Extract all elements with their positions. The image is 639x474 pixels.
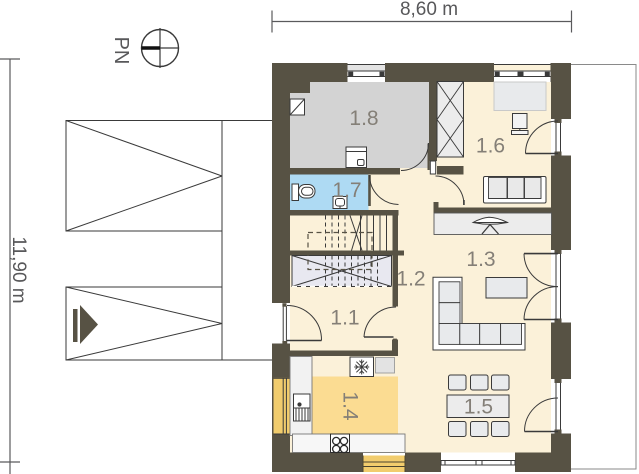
svg-text:1.4: 1.4 (338, 391, 361, 421)
svg-text:1.2: 1.2 (396, 268, 425, 291)
svg-text:1.7: 1.7 (332, 179, 361, 202)
svg-text:8,60 m: 8,60 m (400, 0, 458, 20)
svg-text:PN: PN (110, 37, 132, 65)
svg-text:1.5: 1.5 (464, 396, 493, 419)
svg-text:11,90 m: 11,90 m (8, 236, 29, 303)
svg-text:1.1: 1.1 (330, 307, 359, 330)
svg-text:1.3: 1.3 (466, 248, 495, 271)
svg-text:1.8: 1.8 (349, 107, 378, 130)
svg-text:1.6: 1.6 (476, 135, 505, 158)
